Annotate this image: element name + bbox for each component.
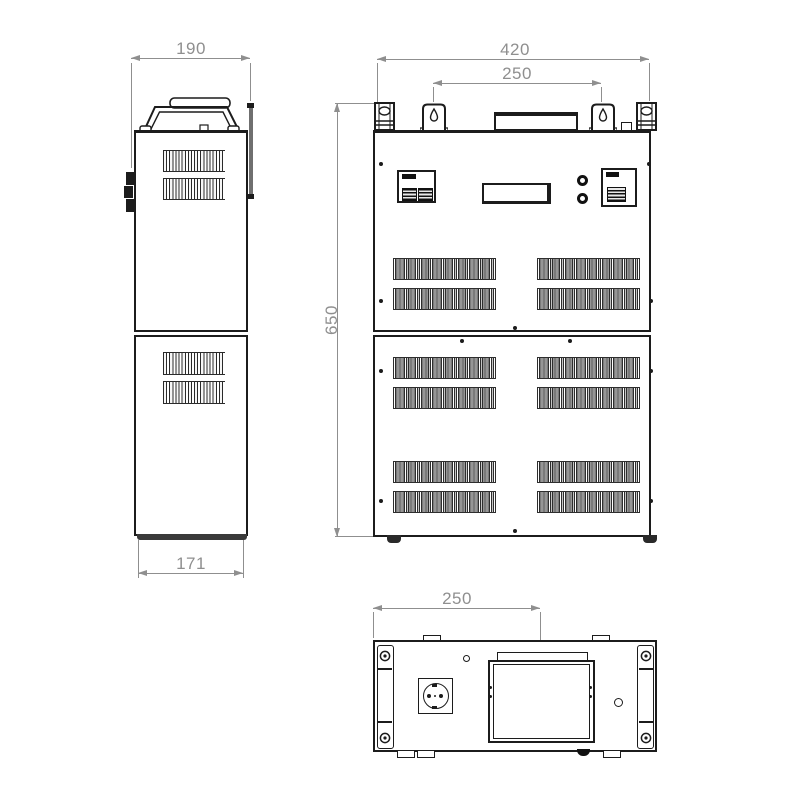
screw	[463, 655, 470, 662]
rail-line	[639, 668, 653, 670]
cover-screw-hole	[489, 695, 492, 698]
rail-screw	[640, 650, 652, 662]
foot	[397, 750, 415, 758]
cover-screw-hole	[489, 686, 492, 689]
rail-screw	[640, 732, 652, 744]
cover-screw-hole	[589, 695, 592, 698]
extension-line	[373, 612, 374, 638]
dimension-line-250-bottom	[373, 608, 540, 609]
foot	[417, 750, 435, 758]
rail-line	[378, 668, 392, 670]
socket-pin-hole	[427, 694, 431, 698]
rail-line	[639, 721, 653, 723]
dimension-label-plate-offset: 250	[422, 590, 492, 608]
arrowhead-icon	[531, 605, 540, 611]
socket-pin-hole	[439, 694, 443, 698]
bottom-view: 250	[0, 0, 800, 800]
rail-line	[378, 721, 392, 723]
power-socket	[418, 678, 453, 714]
socket-ground-clip	[432, 684, 437, 687]
arrowhead-icon	[373, 605, 382, 611]
cover-screw-hole	[589, 686, 592, 689]
drawing-canvas: 190 171	[0, 0, 800, 800]
foot	[603, 750, 621, 758]
socket-center-mark	[434, 695, 436, 697]
cover-plate-inner	[493, 664, 590, 739]
rail-screw	[379, 732, 391, 744]
socket-ground-clip	[432, 706, 437, 709]
rail-screw	[379, 650, 391, 662]
rubber-foot	[577, 749, 590, 756]
cable-gland-hole	[614, 698, 623, 707]
